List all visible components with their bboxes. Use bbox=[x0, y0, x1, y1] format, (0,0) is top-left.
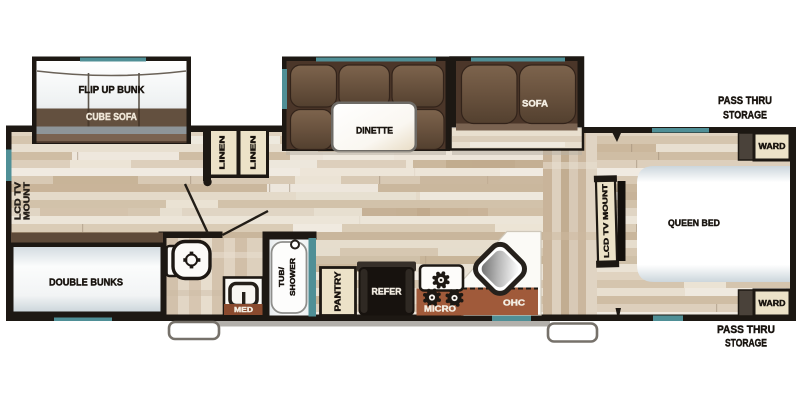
svg-text:MOUNT: MOUNT bbox=[22, 181, 32, 220]
svg-text:STORAGE: STORAGE bbox=[725, 338, 767, 350]
svg-text:PASS THRU: PASS THRU bbox=[717, 324, 775, 336]
svg-text:PANTRY: PANTRY bbox=[334, 271, 343, 312]
svg-text:PASS THRU: PASS THRU bbox=[718, 95, 772, 107]
svg-text:WARD: WARD bbox=[759, 299, 786, 308]
svg-text:MED: MED bbox=[234, 305, 254, 314]
svg-text:LINEN: LINEN bbox=[249, 136, 258, 170]
svg-text:TUB/: TUB/ bbox=[277, 266, 286, 287]
svg-text:OHC: OHC bbox=[503, 298, 525, 308]
svg-text:LINEN: LINEN bbox=[218, 136, 227, 170]
svg-text:MICRO: MICRO bbox=[424, 304, 456, 314]
svg-text:QUEEN BED: QUEEN BED bbox=[668, 218, 720, 229]
svg-text:REFER: REFER bbox=[372, 287, 402, 297]
svg-text:STORAGE: STORAGE bbox=[723, 110, 767, 122]
svg-text:DINETTE: DINETTE bbox=[356, 126, 393, 137]
svg-text:SOFA: SOFA bbox=[522, 99, 548, 110]
svg-text:SHOWER: SHOWER bbox=[288, 257, 297, 296]
svg-text:CUBE SOFA: CUBE SOFA bbox=[86, 112, 137, 123]
svg-text:DOUBLE BUNKS: DOUBLE BUNKS bbox=[49, 278, 123, 289]
svg-text:FLIP UP BUNK: FLIP UP BUNK bbox=[79, 85, 146, 96]
svg-text:WARD: WARD bbox=[759, 142, 786, 151]
